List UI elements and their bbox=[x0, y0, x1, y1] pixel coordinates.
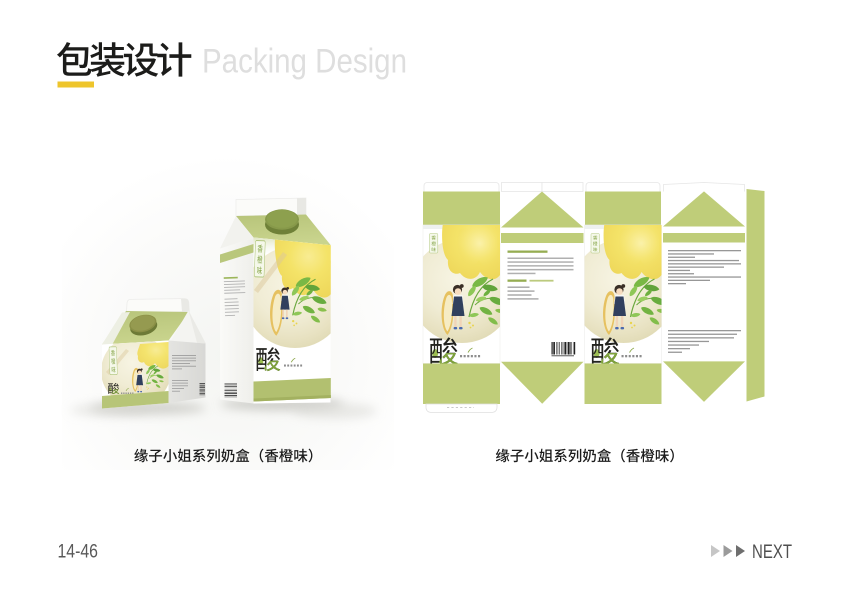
svg-text:NEXT: NEXT bbox=[752, 541, 792, 563]
svg-text:14-46: 14-46 bbox=[58, 542, 99, 563]
svg-text:Packing Design: Packing Design bbox=[202, 43, 407, 81]
